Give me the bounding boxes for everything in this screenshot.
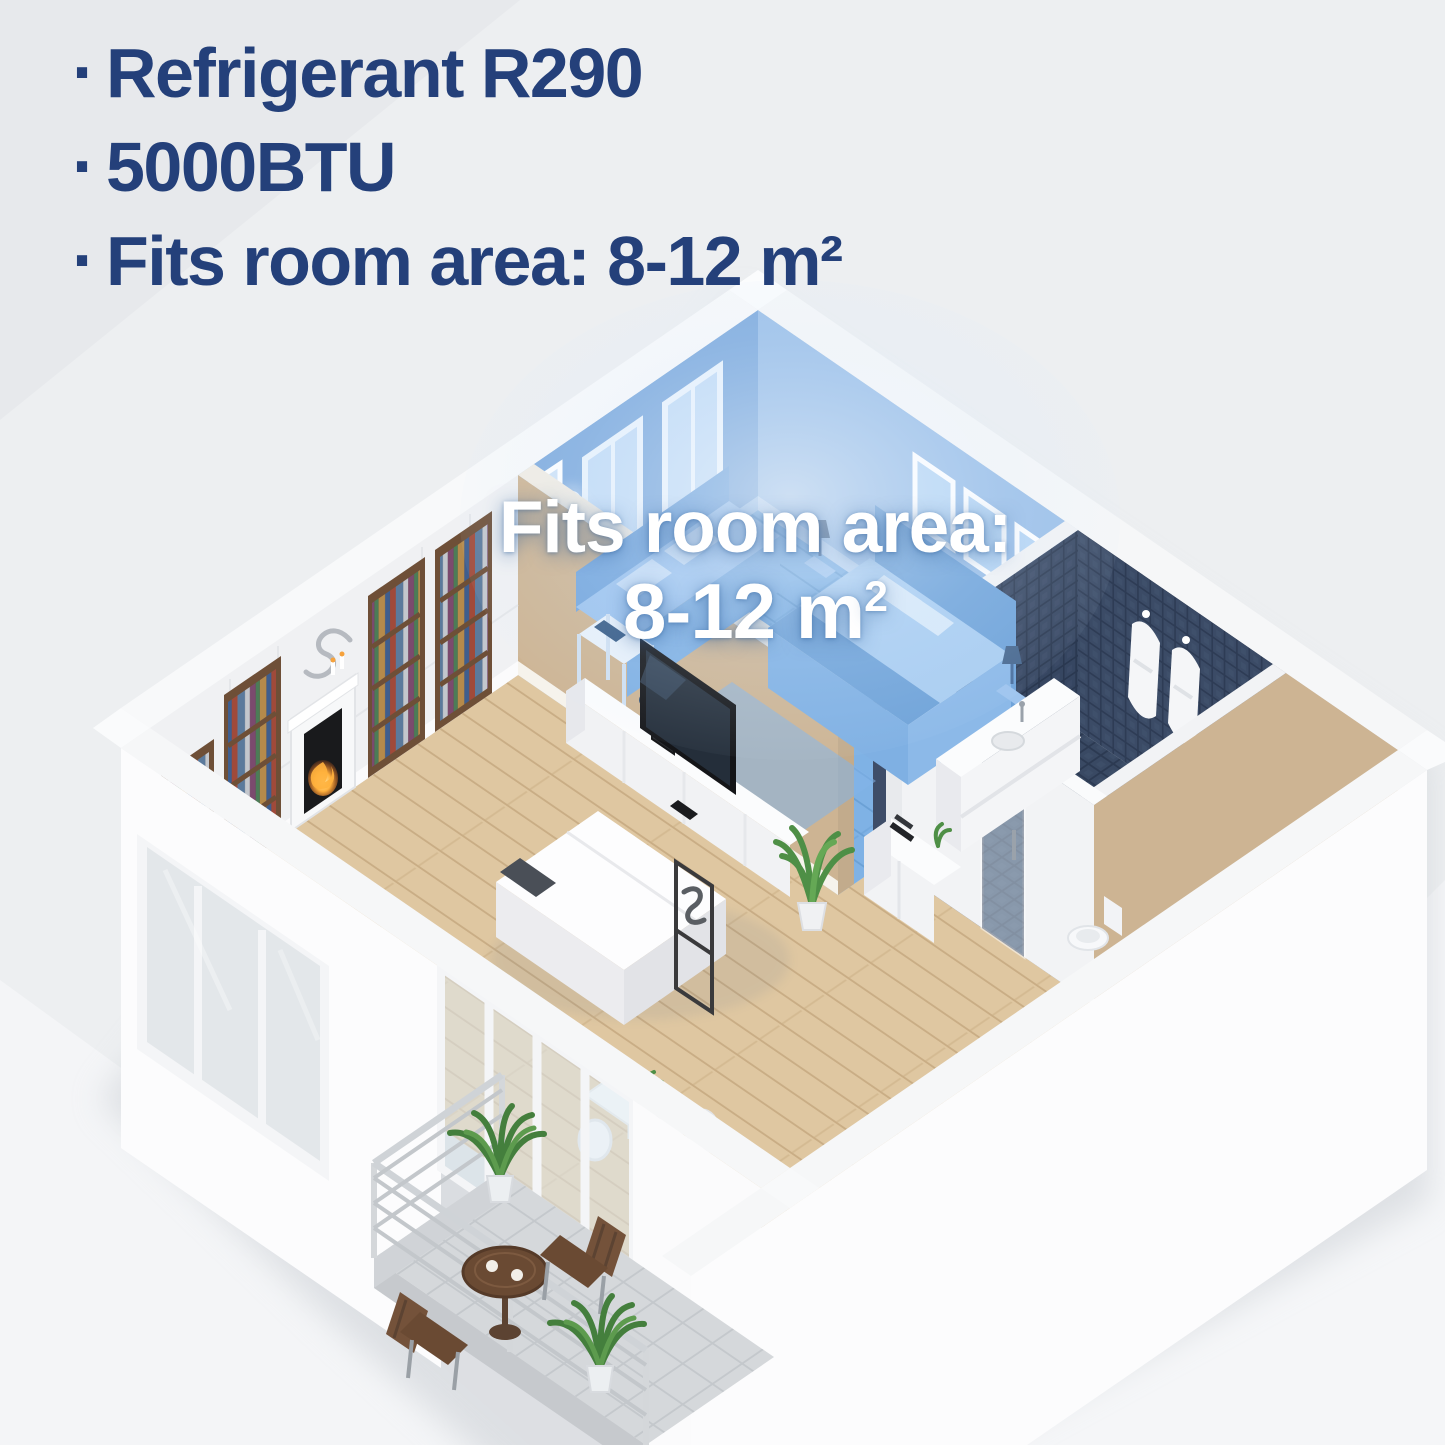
feature-bullet-list: · Refrigerant R290 · 5000BTU · Fits room… xyxy=(62,26,842,308)
feature-bullet-item: · Fits room area: 8-12 m² xyxy=(62,214,842,308)
room-area-overlay-line2: 8-12 m2 xyxy=(365,568,1145,654)
bullet-dot-icon: · xyxy=(62,26,106,120)
bullet-dot-icon: · xyxy=(62,214,106,308)
room-area-overlay-line1: Fits room area: xyxy=(365,488,1145,568)
room-area-overlay-text: Fits room area: 8-12 m2 xyxy=(365,488,1145,654)
feature-bullet-text: Fits room area: 8-12 m² xyxy=(106,214,842,308)
feature-bullet-text: 5000BTU xyxy=(106,120,395,214)
feature-bullet-item: · Refrigerant R290 xyxy=(62,26,842,120)
room-area-value: 8-12 m xyxy=(623,567,864,655)
room-area-superscript: 2 xyxy=(864,573,887,621)
product-feature-image: · Refrigerant R290 · 5000BTU · Fits room… xyxy=(0,0,1445,1445)
feature-bullet-text: Refrigerant R290 xyxy=(106,26,642,120)
bullet-dot-icon: · xyxy=(62,120,106,214)
feature-bullet-item: · 5000BTU xyxy=(62,120,842,214)
